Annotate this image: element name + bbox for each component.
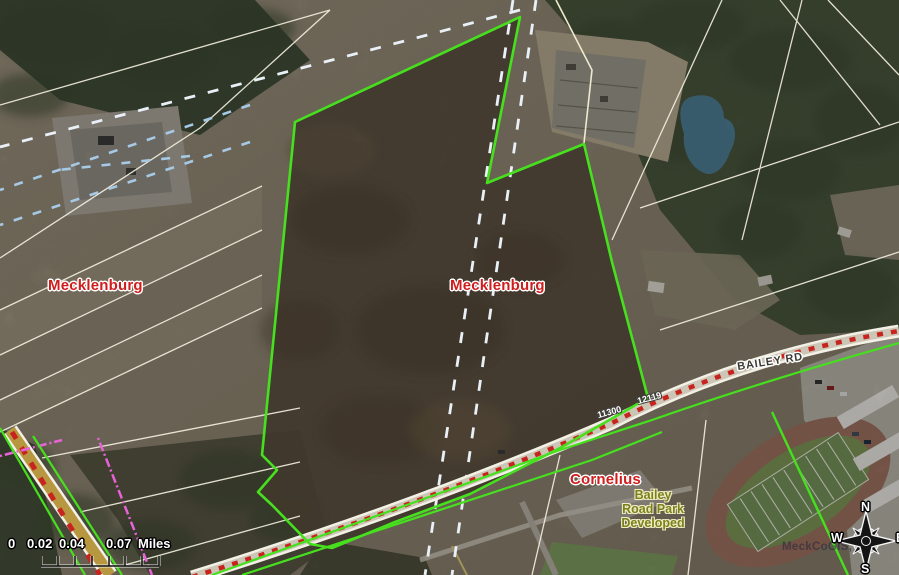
scale-unit: Miles xyxy=(138,536,171,551)
compass-west: W xyxy=(831,531,843,545)
park-label: Bailey Road Park Developed xyxy=(610,488,696,530)
scale-bar: 0 0.02 0.04 0.07 Miles xyxy=(0,530,200,575)
map-canvas[interactable]: Mecklenburg Mecklenburg Cornelius Bailey… xyxy=(0,0,899,575)
compass-north: N xyxy=(861,500,870,514)
county-label-east: Mecklenburg xyxy=(450,277,545,294)
scale-tick-2: 0.04 xyxy=(59,536,84,551)
compass-rose: N S W E xyxy=(820,498,899,575)
compass-south: S xyxy=(861,562,869,575)
city-label: Cornelius xyxy=(570,471,641,488)
scale-tick-1: 0.02 xyxy=(27,536,52,551)
scale-tick-3: 0.07 xyxy=(106,536,131,551)
scale-bar-ticks xyxy=(40,554,166,568)
county-label-west: Mecklenburg xyxy=(48,277,143,294)
scale-tick-0: 0 xyxy=(8,536,15,551)
